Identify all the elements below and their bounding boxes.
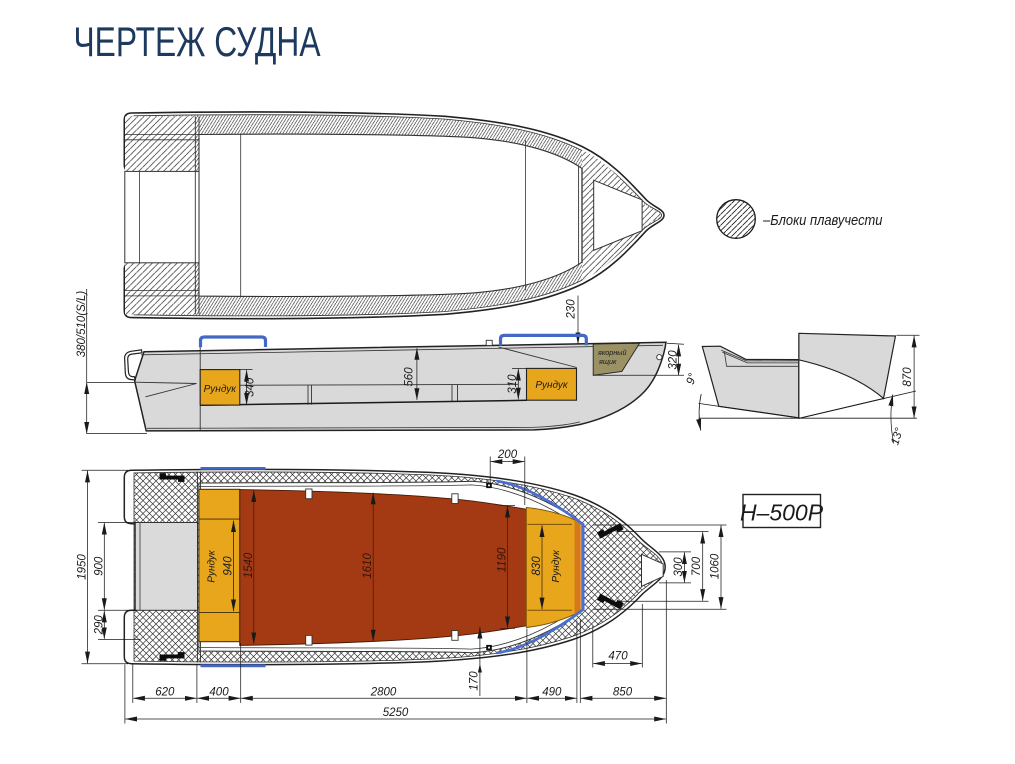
svg-text:300: 300: [673, 557, 685, 577]
svg-text:850: 850: [613, 687, 633, 699]
svg-text:1540: 1540: [243, 552, 255, 578]
svg-text:380/510(S/L): 380/510(S/L): [76, 291, 88, 358]
svg-text:870: 870: [902, 367, 914, 387]
svg-text:ящик: ящик: [598, 357, 617, 366]
svg-text:940: 940: [223, 556, 235, 576]
svg-text:490: 490: [542, 687, 562, 699]
svg-text:620: 620: [155, 687, 175, 699]
svg-text:Рундук: Рундук: [535, 380, 569, 391]
svg-text:290: 290: [93, 615, 105, 636]
svg-text:5250: 5250: [383, 707, 409, 719]
svg-text:Н–500Р: Н–500Р: [740, 500, 824, 526]
svg-text:200: 200: [497, 449, 518, 461]
svg-text:якорный: якорный: [597, 348, 626, 357]
svg-text:170: 170: [469, 671, 481, 691]
svg-text:Рундук: Рундук: [551, 549, 562, 583]
svg-text:–Блоки плавучести: –Блоки плавучести: [762, 212, 883, 229]
svg-text:560: 560: [404, 367, 416, 387]
svg-text:9°: 9°: [685, 372, 700, 387]
svg-text:Рундук: Рундук: [204, 384, 238, 395]
svg-text:830: 830: [531, 556, 543, 576]
svg-text:700: 700: [691, 556, 703, 576]
svg-text:1190: 1190: [497, 547, 509, 572]
svg-text:230: 230: [566, 299, 578, 320]
svg-text:1950: 1950: [77, 554, 89, 580]
svg-text:900: 900: [93, 556, 105, 576]
svg-text:2800: 2800: [370, 687, 397, 699]
svg-text:320: 320: [668, 350, 680, 370]
svg-text:400: 400: [209, 687, 229, 699]
svg-text:340: 340: [244, 377, 256, 397]
svg-text:Рундук: Рундук: [207, 549, 218, 583]
svg-text:1060: 1060: [710, 553, 722, 579]
svg-text:310: 310: [507, 374, 519, 394]
svg-text:ЧЕРТЕЖ СУДНА: ЧЕРТЕЖ СУДНА: [74, 18, 321, 65]
svg-text:470: 470: [608, 651, 628, 663]
svg-text:1610: 1610: [362, 553, 374, 579]
